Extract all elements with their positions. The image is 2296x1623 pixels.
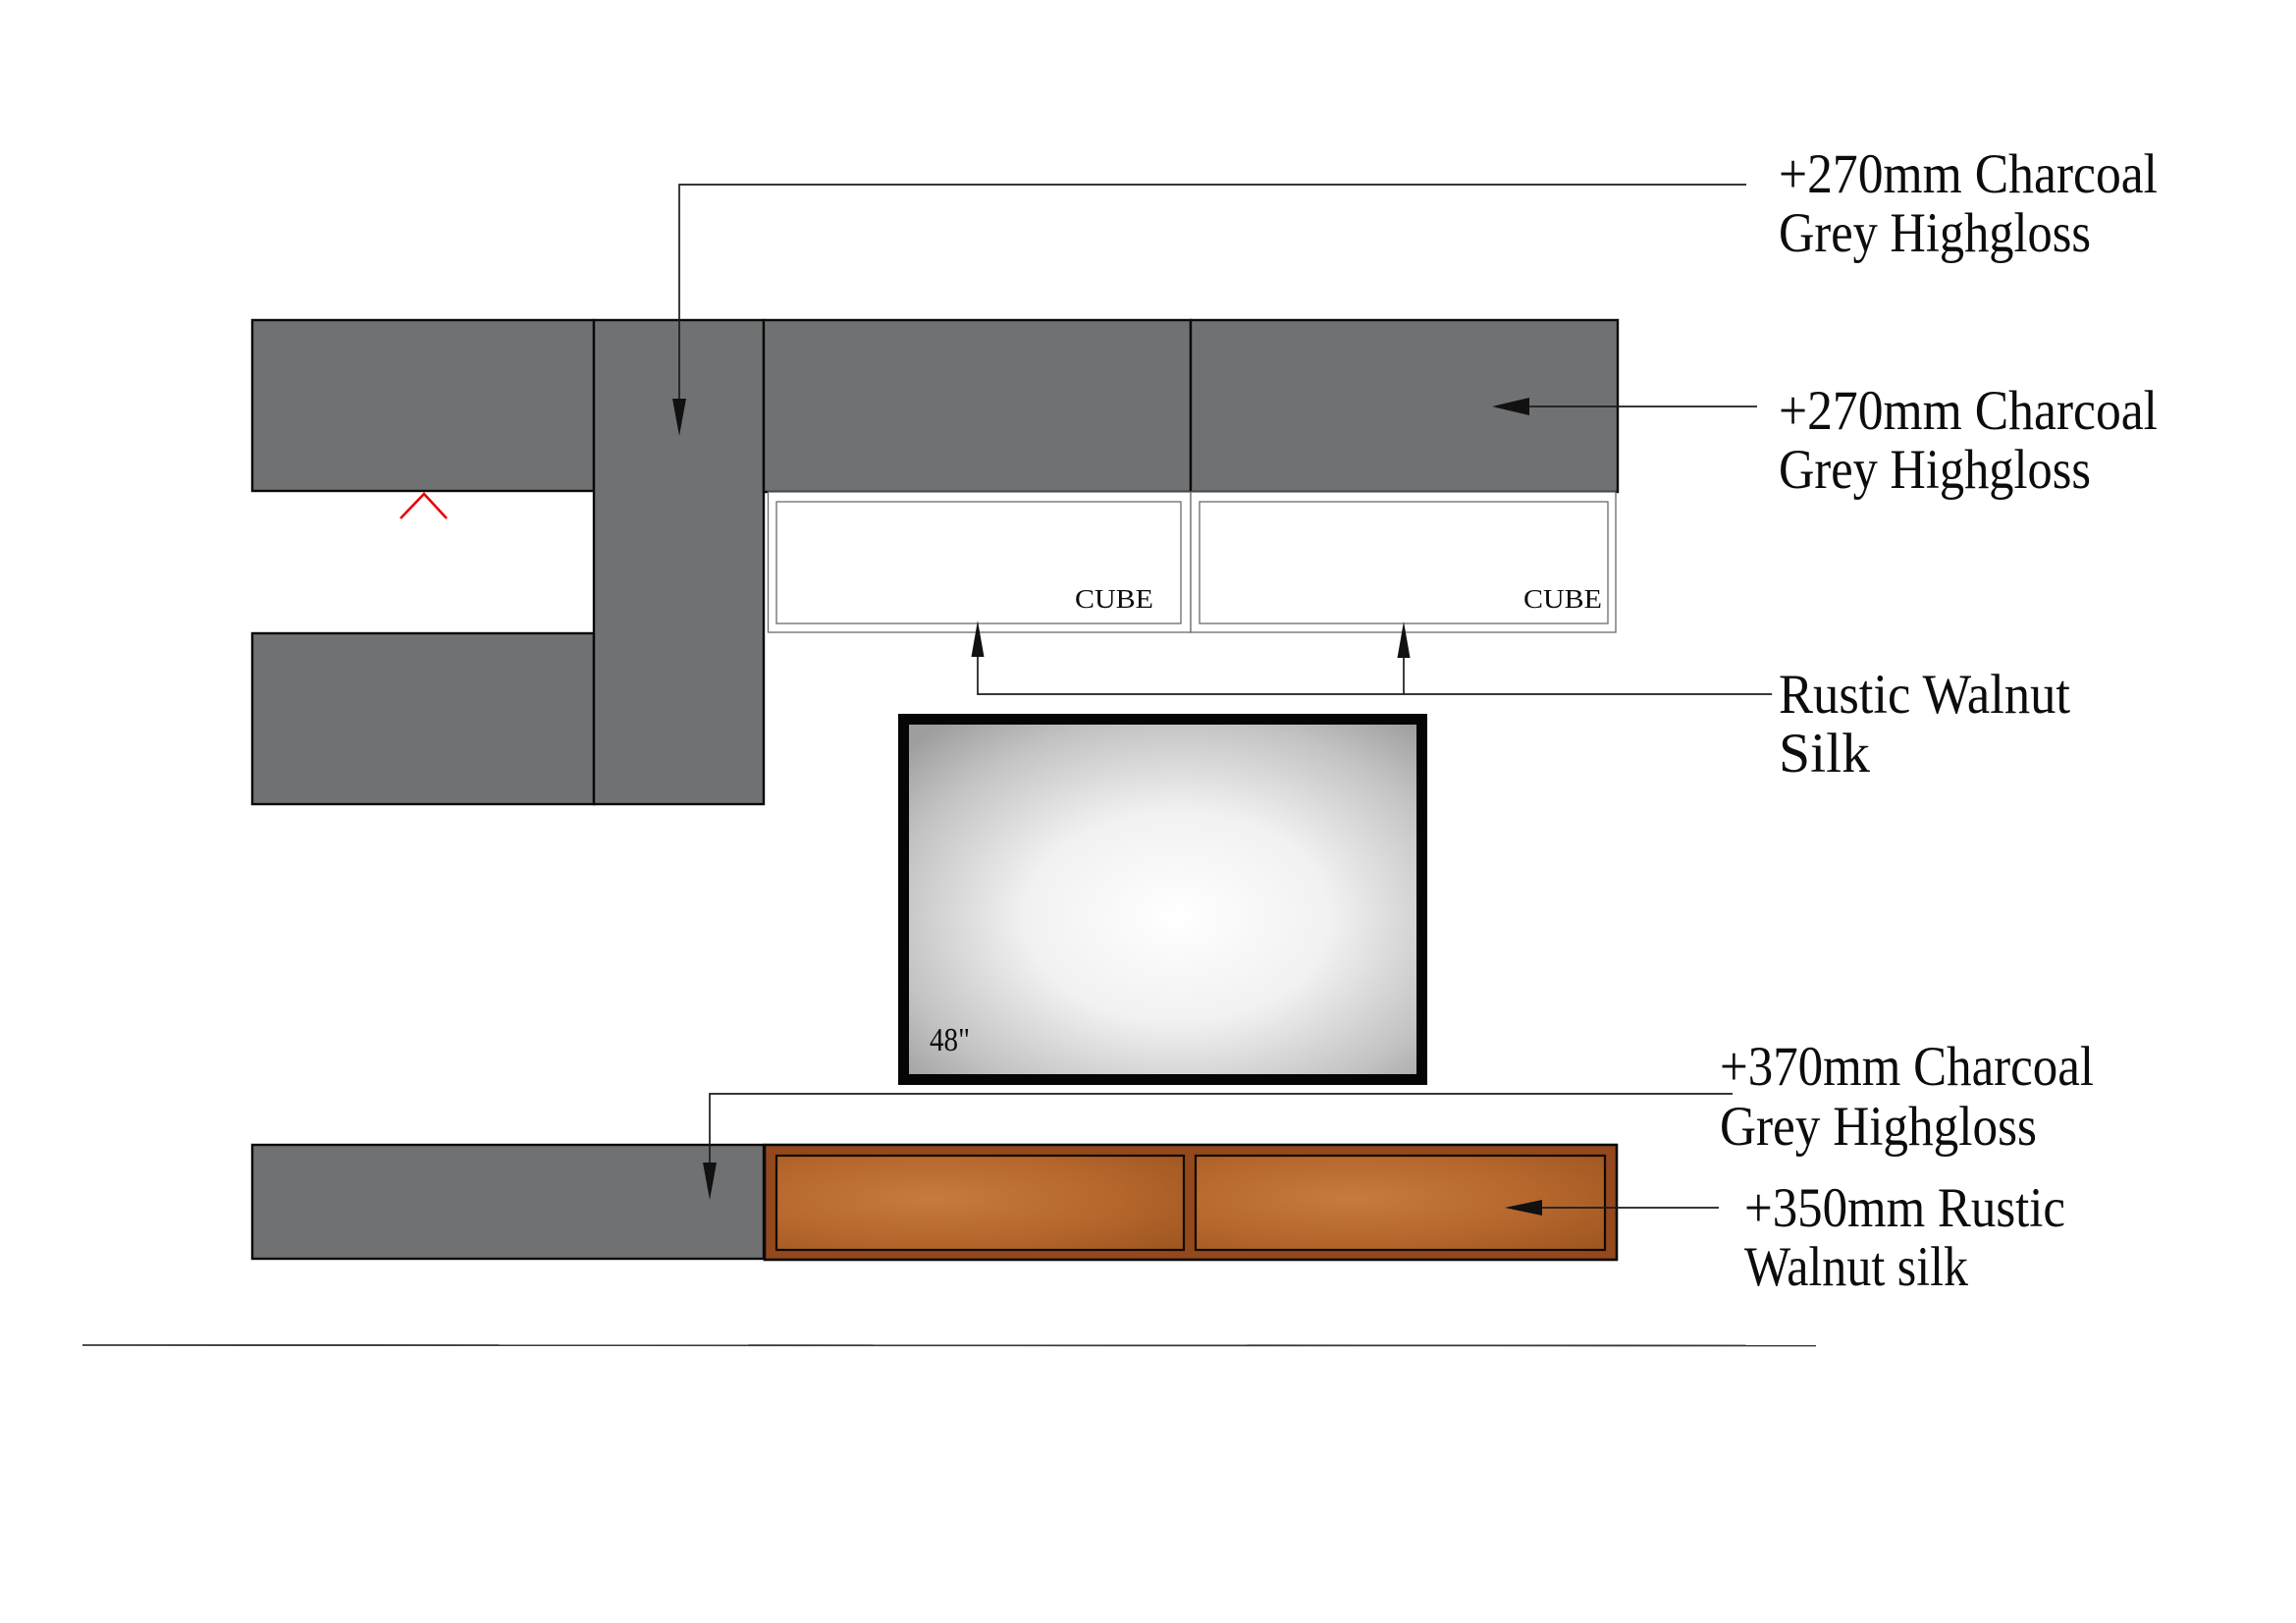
svg-text:Grey Highgloss: Grey Highgloss [1779,439,2091,501]
svg-text:+270mm Charcoal: +270mm Charcoal [1779,380,2158,442]
svg-text:48": 48" [930,1022,970,1058]
svg-text:Rustic Walnut: Rustic Walnut [1779,664,2070,726]
svg-text:Walnut silk: Walnut silk [1744,1236,1968,1298]
svg-text:CUBE: CUBE [1075,584,1153,614]
svg-text:Grey Highgloss: Grey Highgloss [1779,202,2091,264]
svg-text:+370mm Charcoal: +370mm Charcoal [1720,1036,2094,1098]
svg-text:+270mm Charcoal: +270mm Charcoal [1779,143,2158,205]
svg-text:+350mm Rustic: +350mm Rustic [1744,1177,2065,1239]
svg-text:CUBE: CUBE [1523,584,1602,614]
svg-text:Grey Highgloss: Grey Highgloss [1720,1096,2037,1158]
svg-text:Silk: Silk [1779,723,1871,784]
